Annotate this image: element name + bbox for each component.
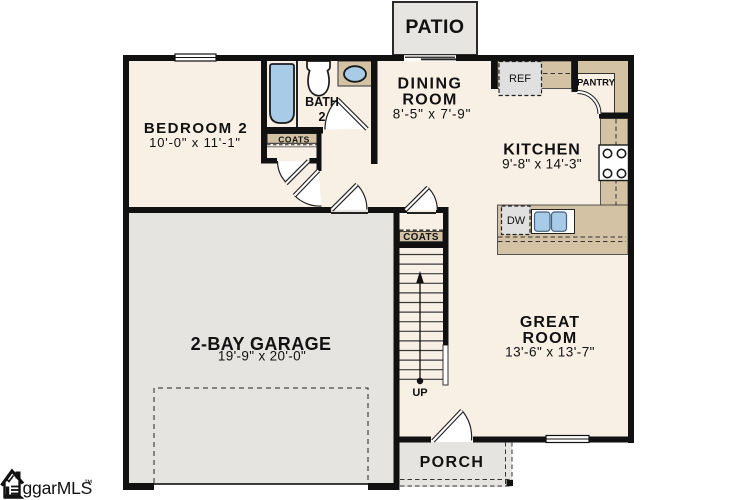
svg-text:DW: DW xyxy=(507,215,526,227)
svg-text:PATIO: PATIO xyxy=(405,16,464,38)
svg-text:BATH: BATH xyxy=(305,95,339,109)
svg-text:UP: UP xyxy=(412,387,427,399)
svg-text:PORCH: PORCH xyxy=(420,454,485,471)
svg-text:PANTRY: PANTRY xyxy=(577,78,616,89)
svg-text:REF: REF xyxy=(509,73,531,85)
svg-text:8'-5" x 7'-9": 8'-5" x 7'-9" xyxy=(393,107,471,122)
svg-text:2: 2 xyxy=(319,110,326,124)
svg-text:COATS: COATS xyxy=(403,232,439,243)
svg-text:DINING: DINING xyxy=(398,76,463,93)
svg-text:13'-6" x 13'-7": 13'-6" x 13'-7" xyxy=(505,345,595,360)
svg-text:9'-8" x 14'-3": 9'-8" x 14'-3" xyxy=(502,157,582,172)
svg-text:™: ™ xyxy=(84,478,93,488)
svg-text:GREAT: GREAT xyxy=(520,314,580,331)
svg-text:10'-0" x 11'-1": 10'-0" x 11'-1" xyxy=(149,135,241,150)
svg-text:ggarMLS: ggarMLS xyxy=(23,478,93,498)
svg-text:COATS: COATS xyxy=(278,134,310,144)
svg-text:19'-9" x 20'-0": 19'-9" x 20'-0" xyxy=(218,349,306,364)
